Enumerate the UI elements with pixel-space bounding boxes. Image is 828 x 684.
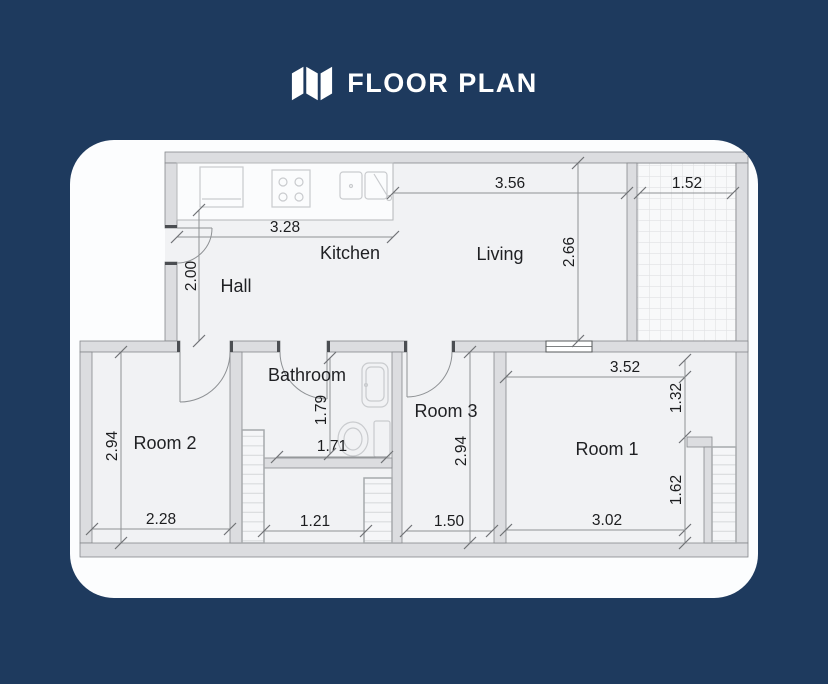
folded-map-icon <box>290 64 334 102</box>
svg-text:2.00: 2.00 <box>183 261 200 292</box>
svg-text:2.66: 2.66 <box>561 237 578 267</box>
svg-text:1.32: 1.32 <box>668 383 685 413</box>
svg-text:1.50: 1.50 <box>434 513 465 530</box>
room-label-kitchen: Kitchen <box>320 243 380 263</box>
room-label-living: Living <box>476 244 523 264</box>
svg-text:2.94: 2.94 <box>453 436 470 467</box>
svg-text:3.52: 3.52 <box>610 359 640 376</box>
kitchen-counter <box>177 163 393 220</box>
interior-window <box>546 341 592 352</box>
svg-text:3.56: 3.56 <box>495 175 525 192</box>
closet-hall-left <box>242 430 264 543</box>
page-title: FLOOR PLAN <box>347 68 538 99</box>
svg-text:3.02: 3.02 <box>592 512 622 529</box>
floor-plan-card: 3.28 3.56 1.52 3.52 <box>70 140 758 598</box>
svg-text:2.94: 2.94 <box>104 431 121 462</box>
svg-text:3.28: 3.28 <box>270 219 300 236</box>
svg-text:1.79: 1.79 <box>313 395 330 425</box>
room-label-room1: Room 1 <box>575 439 638 459</box>
closet-hall-right <box>364 478 392 543</box>
svg-text:1.52: 1.52 <box>672 175 702 192</box>
room-label-hall: Hall <box>220 276 251 296</box>
room-label-room2: Room 2 <box>133 433 196 453</box>
room-label-room3: Room 3 <box>414 401 477 421</box>
header: FLOOR PLAN <box>0 64 828 102</box>
svg-text:2.28: 2.28 <box>146 511 176 528</box>
closet-room1 <box>712 447 736 543</box>
svg-text:1.62: 1.62 <box>668 475 685 505</box>
floor-plan: 3.28 3.56 1.52 3.52 <box>70 140 758 598</box>
room-label-bathroom: Bathroom <box>268 365 346 385</box>
page-background: FLOOR PLAN <box>0 0 828 684</box>
svg-text:1.21: 1.21 <box>300 513 330 530</box>
